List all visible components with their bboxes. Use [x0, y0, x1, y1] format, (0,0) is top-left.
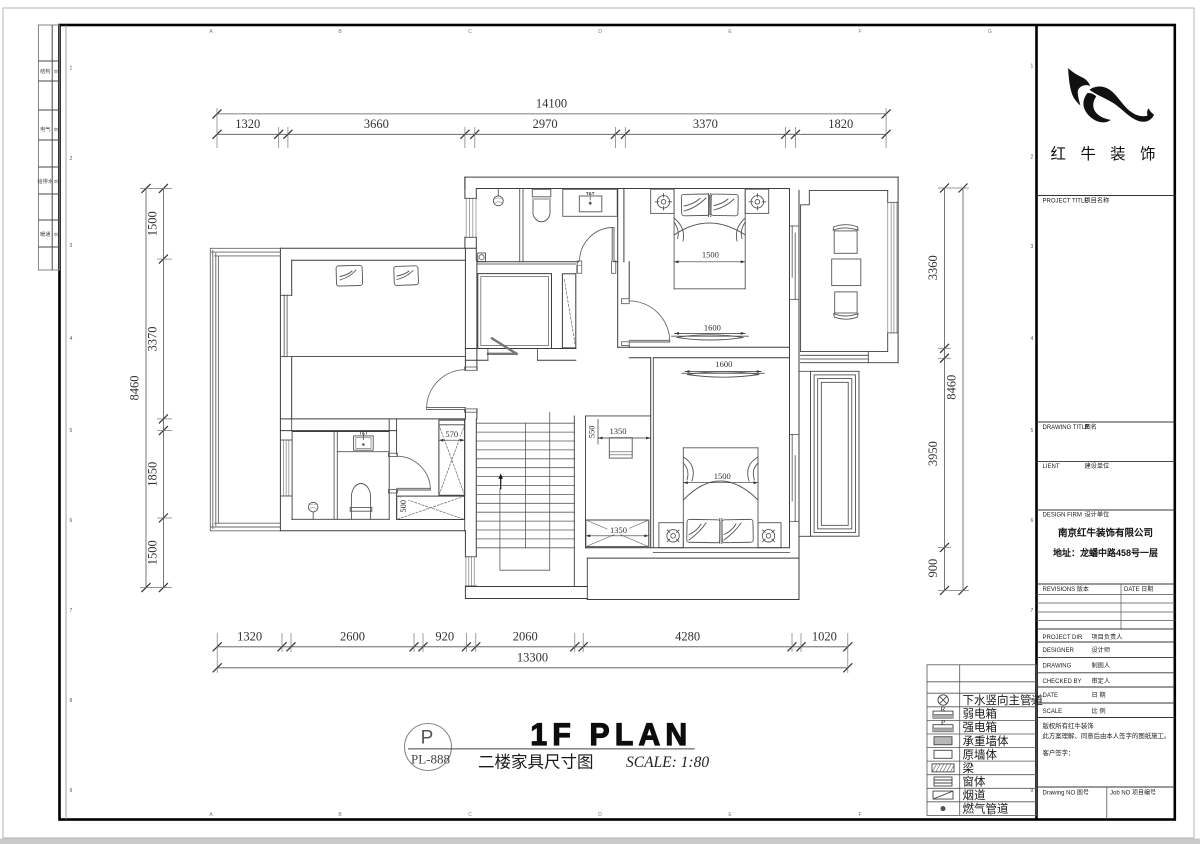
svg-text:DATE: DATE	[1043, 693, 1059, 699]
svg-text:原墙体: 原墙体	[963, 747, 998, 761]
svg-text:DATE 日期: DATE 日期	[1124, 585, 1153, 593]
svg-text:1850: 1850	[146, 462, 160, 487]
svg-text:3370: 3370	[693, 117, 718, 131]
svg-text:F: F	[858, 29, 861, 35]
svg-text:南京红牛装饰有限公司: 南京红牛装饰有限公司	[1058, 527, 1153, 539]
svg-text:CHECKED BY: CHECKED BY	[1043, 679, 1082, 685]
svg-text:REVISIONS 版本: REVISIONS 版本	[1043, 585, 1089, 593]
svg-text:13300: 13300	[517, 651, 548, 665]
svg-text:图名: 图名	[1085, 423, 1097, 431]
svg-text:Drawing NO 图号: Drawing NO 图号	[1043, 790, 1089, 797]
svg-text:PROJECT TITLE: PROJECT TITLE	[1043, 199, 1089, 205]
svg-text:920: 920	[435, 629, 454, 643]
svg-text:14100: 14100	[536, 97, 567, 111]
svg-text:比 例: 比 例	[1092, 707, 1106, 715]
svg-text:DRAWING TITLE: DRAWING TITLE	[1043, 425, 1090, 431]
svg-text:3: 3	[1031, 244, 1034, 250]
svg-text:570: 570	[445, 429, 458, 439]
svg-text:1600: 1600	[715, 359, 732, 369]
svg-text:审定人: 审定人	[1092, 677, 1111, 685]
svg-text:烟道: 烟道	[963, 788, 986, 802]
svg-text:Job NO 项目编号: Job NO 项目编号	[1110, 789, 1156, 797]
svg-text:1600: 1600	[704, 322, 721, 332]
svg-text:审: 审	[54, 68, 58, 75]
svg-text:SCALE: SCALE	[1043, 709, 1063, 715]
svg-text:1500: 1500	[702, 249, 719, 259]
svg-text:二楼家具尺寸图: 二楼家具尺寸图	[478, 753, 594, 772]
svg-text:D: D	[598, 29, 602, 35]
svg-text:3660: 3660	[364, 117, 389, 131]
svg-text:1820: 1820	[828, 117, 853, 131]
svg-text:3360: 3360	[926, 255, 940, 280]
svg-text:5: 5	[1031, 428, 1034, 434]
svg-text:6: 6	[1031, 518, 1034, 524]
svg-text:4: 4	[1031, 336, 1034, 342]
svg-text:下水竖向主管道: 下水竖向主管道	[963, 693, 1044, 707]
svg-text:客户签字：: 客户签字：	[1043, 748, 1075, 757]
svg-text:1F PLAN: 1F PLAN	[530, 716, 692, 752]
svg-text:9: 9	[1031, 788, 1034, 794]
svg-text:F: F	[858, 812, 861, 818]
svg-text:8460: 8460	[128, 376, 142, 401]
svg-text:弱电箱: 弱电箱	[963, 707, 998, 721]
svg-text:P: P	[421, 728, 434, 749]
svg-text:DESIGNER: DESIGNER	[1043, 648, 1075, 654]
svg-text:项目名称: 项目名称	[1085, 197, 1110, 205]
svg-text:1350: 1350	[610, 525, 627, 535]
svg-text:电气: 电气	[40, 125, 50, 133]
svg-text:SCALE: 1:80: SCALE: 1:80	[626, 754, 709, 771]
svg-text:900: 900	[926, 559, 940, 578]
svg-text:7: 7	[70, 608, 73, 614]
svg-text:4280: 4280	[675, 629, 700, 643]
svg-text:PL-888: PL-888	[411, 752, 450, 767]
svg-text:2060: 2060	[513, 629, 538, 643]
svg-text:P: P	[941, 718, 945, 727]
svg-text:3370: 3370	[146, 327, 160, 352]
svg-text:550: 550	[587, 426, 597, 439]
svg-text:1500: 1500	[714, 471, 731, 481]
svg-text:承重墙体: 承重墙体	[963, 734, 1009, 748]
svg-text:梁: 梁	[963, 761, 975, 775]
svg-text:项目负责人: 项目负责人	[1092, 633, 1123, 641]
svg-text:设计师: 设计师	[1092, 646, 1111, 654]
svg-text:红 牛 装 饰: 红 牛 装 饰	[1051, 145, 1161, 163]
svg-text:2: 2	[1031, 154, 1034, 160]
svg-text:1: 1	[70, 66, 73, 72]
svg-text:强电箱: 强电箱	[963, 720, 998, 734]
svg-text:8: 8	[70, 698, 73, 704]
svg-text:PROJECT DIR: PROJECT DIR	[1043, 635, 1084, 641]
svg-text:燃气管道: 燃气管道	[963, 802, 1009, 816]
svg-text:1350: 1350	[610, 426, 627, 436]
svg-text:4: 4	[70, 336, 73, 342]
svg-text:1320: 1320	[235, 117, 260, 131]
svg-text:C: C	[468, 812, 472, 818]
svg-text:DESIGN FIRM: DESIGN FIRM	[1043, 513, 1082, 519]
svg-text:审: 审	[54, 231, 58, 238]
svg-text:审: 审	[54, 178, 58, 185]
svg-text:1320: 1320	[237, 629, 262, 643]
svg-text:D: D	[598, 812, 602, 818]
svg-text:9: 9	[70, 788, 73, 794]
svg-text:窗体: 窗体	[963, 775, 986, 789]
svg-text:C: C	[468, 29, 472, 35]
svg-text:2970: 2970	[533, 117, 558, 131]
svg-text:R: R	[940, 704, 945, 713]
svg-text:8460: 8460	[945, 375, 959, 400]
svg-text:暖通: 暖通	[40, 230, 51, 238]
svg-text:5: 5	[70, 428, 73, 434]
svg-text:G: G	[988, 29, 992, 35]
svg-text:给排水: 给排水	[38, 177, 54, 185]
svg-text:1500: 1500	[146, 211, 160, 236]
svg-text:3: 3	[70, 243, 73, 249]
svg-text:1020: 1020	[812, 629, 837, 643]
svg-text:1500: 1500	[146, 540, 160, 565]
svg-text:地址：龙蟠中路458号一层: 地址：龙蟠中路458号一层	[1053, 547, 1158, 558]
svg-text:审: 审	[54, 126, 58, 133]
svg-text:1: 1	[1031, 64, 1034, 70]
svg-text:500: 500	[398, 500, 408, 513]
svg-text:此方案理解、同意后由本人签字的图纸施工。: 此方案理解、同意后由本人签字的图纸施工。	[1043, 731, 1171, 740]
svg-text:制图人: 制图人	[1092, 662, 1111, 670]
svg-text:LIENT: LIENT	[1043, 464, 1060, 470]
svg-text:7: 7	[1031, 608, 1034, 614]
svg-text:日 期: 日 期	[1092, 691, 1106, 699]
svg-text:2600: 2600	[340, 629, 365, 643]
svg-text:DRAWING: DRAWING	[1043, 664, 1072, 670]
svg-text:3950: 3950	[926, 441, 940, 466]
svg-text:2: 2	[70, 156, 73, 162]
svg-text:设计单位: 设计单位	[1085, 511, 1110, 519]
svg-text:版权所有红牛装饰: 版权所有红牛装饰	[1043, 721, 1095, 730]
svg-text:结构: 结构	[40, 67, 50, 75]
svg-text:6: 6	[70, 518, 73, 524]
svg-text:建设单位: 建设单位	[1085, 462, 1110, 470]
